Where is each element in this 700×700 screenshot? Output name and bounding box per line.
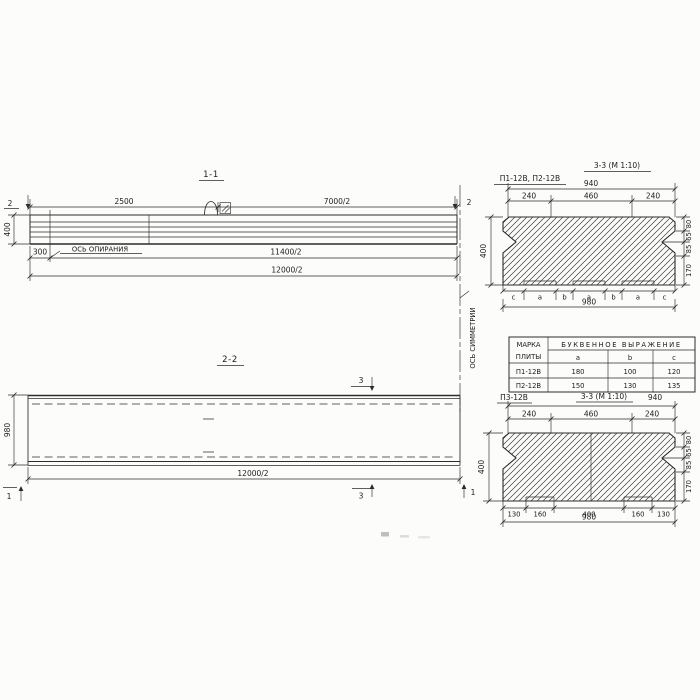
letter-a1: a [538,294,542,302]
section-3-3-title: 3-3 (М 1:10) [594,161,640,170]
section-mark-1-right: 1 [471,488,476,497]
table-row: П1-12В 180 100 120 [516,368,681,376]
table-col-c: c [672,354,676,362]
dim-85: 85 [685,461,693,470]
dim-400: 400 [3,222,12,237]
dim-12000-2: 12000/2 [237,469,268,478]
row1-mark: П1-12В [516,368,542,376]
dimension-line [483,433,503,501]
letter-c1: c [512,294,516,302]
row2-b: 130 [624,382,637,390]
letter-b1: b [562,294,566,302]
dim-170: 170 [685,264,693,277]
section-mark-1-left: 1 [7,492,12,501]
dim-65: 65 [685,448,693,457]
dim-240-right: 240 [646,192,661,201]
dim-460: 460 [584,410,599,419]
dimension-ticks [28,256,460,279]
row1-a: 180 [572,368,585,376]
plate-marks-label: П1-12В, П2-12В [500,174,560,183]
slab-cross-section [503,217,675,285]
slab-outline [30,215,457,244]
leader-line [460,291,469,298]
dim-130-right: 130 [657,511,670,519]
dim-400: 400 [477,460,486,475]
lifting-loop-icon [205,202,218,216]
dim-2500: 2500 [114,197,133,206]
section-3-3-title: 3-3 (М 1:10) [581,392,627,401]
section-arrow-up-icon [462,484,467,489]
dim-85: 85 [685,245,693,254]
section-mark-2-left: 2 [8,199,13,208]
engineering-drawing: 1-1 2500 7000/2 2 400 ОСЬ ОПИРАНИЯ 300 1 [0,0,700,700]
dim-240-left: 240 [522,410,537,419]
dim-12000-2: 12000/2 [271,266,302,275]
dim-160-right: 160 [632,511,645,519]
dim-400: 400 [479,244,488,259]
dim-980: 980 [582,298,597,307]
scan-artifacts [381,532,430,538]
section-arrow-down-icon [370,386,375,391]
plate-mark-label: П3-12В [500,393,528,402]
dim-80: 80 [685,436,693,445]
dim-980: 980 [582,513,597,522]
section-1-1: 1-1 2500 7000/2 2 400 ОСЬ ОПИРАНИЯ 300 1 [3,170,472,281]
scan-artifact [381,532,389,537]
letter-a3: a [636,294,640,302]
table-col-a: a [576,354,580,362]
section-2-2: 2-2 3 980 12000/2 1 1 3 [3,355,476,501]
plan-side-edges [28,396,460,466]
dimension-line [30,199,457,215]
scan-artifact [418,536,430,538]
section-mark-3-top: 3 [359,376,364,385]
dim-240-right: 240 [645,410,660,419]
loop-detail-mark [222,205,230,213]
row2-c: 135 [668,382,681,390]
section-arrow-up-icon [19,486,24,491]
table-header-group: БУКВЕННОЕ ВЫРАЖЕНИЕ [561,341,682,349]
prestressing-strands [30,222,457,237]
table-col-b: b [628,354,632,362]
row2-a: 150 [572,382,585,390]
section-2-2-title: 2-2 [222,355,238,365]
dim-240-left: 240 [522,192,537,201]
section-3-3-top: 3-3 (М 1:10) П1-12В, П2-12В 940 240 460 … [479,161,693,312]
letter-c2: c [663,294,667,302]
table-row: П2-12В 150 130 135 [516,382,681,390]
dim-940: 940 [584,179,599,188]
table-header-plity: ПЛИТЫ [516,353,541,361]
dim-940: 940 [648,393,663,402]
dim-7000-2: 7000/2 [324,197,351,206]
dim-11400-2: 11400/2 [270,248,301,257]
symmetry-axis-label: ОСЬ СИММЕТРИИ [469,307,477,368]
section-1-1-title: 1-1 [203,170,219,180]
row1-b: 100 [624,368,637,376]
dim-460: 460 [584,192,599,201]
dim-130-left: 130 [508,511,521,519]
symmetry-axis: ОСЬ СИММЕТРИИ [460,185,477,412]
row2-mark: П2-12В [516,382,542,390]
dim-65: 65 [685,232,693,241]
letter-values-table: МАРКА ПЛИТЫ БУКВЕННОЕ ВЫРАЖЕНИЕ a b c П1… [509,337,695,392]
dim-170: 170 [685,480,693,493]
center-dash-marks [203,419,214,452]
dim-980: 980 [3,423,12,438]
letter-b2: b [611,294,615,302]
scan-artifact [400,535,409,538]
section-mark-2-right: 2 [467,198,472,207]
dim-160-left: 160 [534,511,547,519]
dim-300: 300 [33,248,48,257]
support-axis-label: ОСЬ ОПИРАНИЯ [72,246,128,254]
slab-cross-section [503,433,675,501]
table-header-marka: МАРКА [516,341,540,349]
dim-80: 80 [685,220,693,229]
row1-c: 120 [668,368,681,376]
section-mark-3-bottom: 3 [359,492,364,501]
section-3-3-bottom: П3-12В 3-3 (М 1:10) 940 240 460 240 400 … [477,392,693,527]
section-arrow-up-icon [370,484,375,489]
